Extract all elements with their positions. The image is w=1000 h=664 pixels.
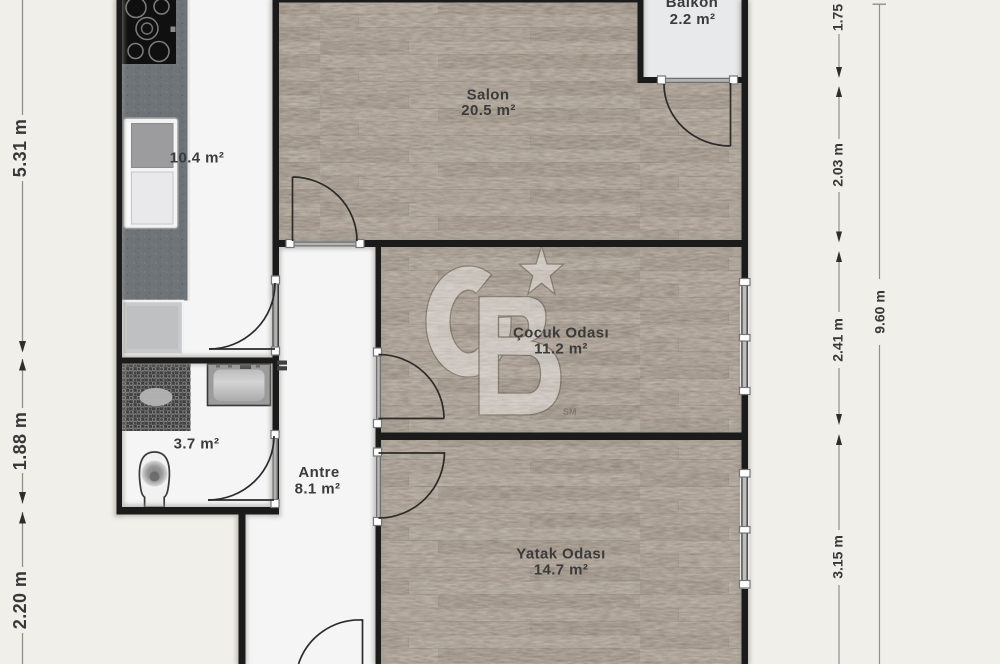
svg-text:10.4 m²: 10.4 m² <box>170 150 225 167</box>
svg-text:3.15 m: 3.15 m <box>830 535 846 579</box>
svg-text:11.2 m²: 11.2 m² <box>534 341 588 358</box>
svg-text:3.7 m²: 3.7 m² <box>174 436 220 453</box>
svg-text:1.88 m: 1.88 m <box>10 412 30 470</box>
svg-text:8.1 m²: 8.1 m² <box>295 481 341 498</box>
svg-text:14.7 m²: 14.7 m² <box>534 562 589 579</box>
svg-text:Antre: Antre <box>298 464 339 481</box>
svg-text:2.41 m: 2.41 m <box>830 318 846 362</box>
svg-text:20.5 m²: 20.5 m² <box>461 102 516 119</box>
svg-text:9.60 m: 9.60 m <box>872 290 888 334</box>
svg-text:2.20 m: 2.20 m <box>10 571 30 629</box>
svg-text:2.2 m²: 2.2 m² <box>670 11 716 28</box>
svg-text:Balkon: Balkon <box>666 0 718 11</box>
svg-text:Çocuk Odası: Çocuk Odası <box>513 325 609 342</box>
svg-text:2.03 m: 2.03 m <box>830 143 846 187</box>
svg-text:1.75: 1.75 <box>830 4 846 31</box>
svg-text:Yatak Odası: Yatak Odası <box>516 546 605 563</box>
svg-text:5.31 m: 5.31 m <box>10 119 30 177</box>
svg-text:SM: SM <box>563 407 577 417</box>
svg-text:Salon: Salon <box>467 87 510 104</box>
